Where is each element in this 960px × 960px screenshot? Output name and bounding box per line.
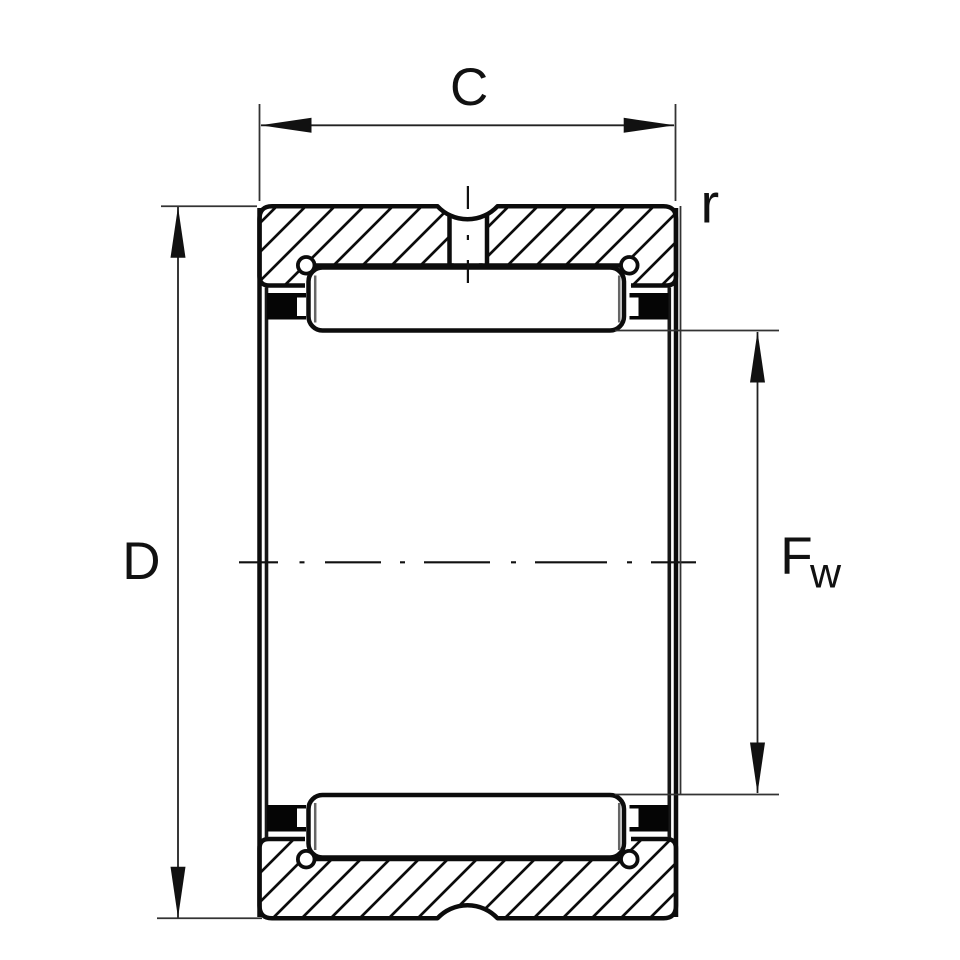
svg-text:C: C [450, 58, 488, 117]
svg-text:F: F [780, 527, 812, 586]
svg-text:w: w [809, 550, 842, 598]
svg-text:D: D [122, 532, 160, 591]
svg-text:r: r [701, 172, 720, 235]
